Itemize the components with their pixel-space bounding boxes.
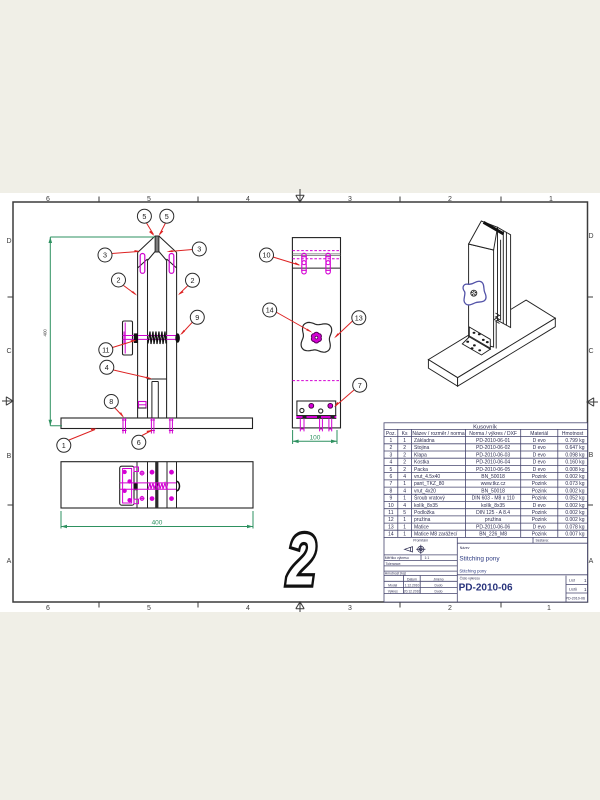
svg-text:11: 11 <box>388 510 393 516</box>
svg-text:D evo: D evo <box>533 438 546 444</box>
svg-text:DIN 125 - A 8.4: DIN 125 - A 8.4 <box>476 510 510 516</box>
svg-text:10: 10 <box>388 503 394 509</box>
svg-text:1: 1 <box>547 605 551 612</box>
svg-text:Název: Název <box>460 546 470 550</box>
svg-text:A: A <box>589 558 594 565</box>
svg-text:Výkres: Výkres <box>388 589 398 593</box>
svg-text:Pozink: Pozink <box>532 532 548 538</box>
svg-text:2: 2 <box>403 445 406 451</box>
svg-text:9: 9 <box>390 496 393 502</box>
svg-text:8: 8 <box>390 488 393 494</box>
svg-text:www.tkz.cz: www.tkz.cz <box>481 481 506 487</box>
svg-text:1: 1 <box>403 524 406 530</box>
svg-text:Dudo: Dudo <box>435 589 443 593</box>
svg-text:4: 4 <box>403 474 406 480</box>
svg-text:2: 2 <box>390 445 393 451</box>
svg-text:List: List <box>569 579 576 583</box>
svg-text:A: A <box>7 558 12 565</box>
svg-text:D evo: D evo <box>533 467 546 473</box>
svg-text:3: 3 <box>103 251 107 260</box>
svg-text:kolík_8x35: kolík_8x35 <box>414 503 438 509</box>
svg-text:B: B <box>7 453 12 460</box>
svg-text:vrut_4.5x40: vrut_4.5x40 <box>414 474 440 480</box>
svg-text:Packa: Packa <box>414 467 428 473</box>
svg-text:Stitching pony: Stitching pony <box>459 556 500 563</box>
svg-text:0.160 kg: 0.160 kg <box>565 460 584 466</box>
svg-text:D evo: D evo <box>533 445 546 451</box>
svg-text:Název / rozměr / norma: Název / rozměr / norma <box>412 431 464 437</box>
svg-text:5: 5 <box>403 510 406 516</box>
svg-text:2: 2 <box>286 520 316 600</box>
svg-text:7: 7 <box>390 481 393 487</box>
svg-text:13: 13 <box>388 524 394 530</box>
svg-text:6: 6 <box>137 438 141 447</box>
svg-text:PD-2010-06-06: PD-2010-06-06 <box>476 524 510 530</box>
svg-text:2: 2 <box>403 467 406 473</box>
svg-text:4: 4 <box>246 605 250 612</box>
svg-text:0.002 kg: 0.002 kg <box>565 510 584 516</box>
svg-text:B: B <box>589 452 594 459</box>
svg-text:Základna: Základna <box>414 438 435 444</box>
svg-text:0.098 kg: 0.098 kg <box>565 452 584 458</box>
svg-text:Norma / výkres / DXF: Norma / výkres / DXF <box>469 431 517 437</box>
svg-text:Pozink: Pozink <box>532 488 548 494</box>
svg-text:0.052 kg: 0.052 kg <box>565 496 584 502</box>
svg-text:Dudo: Dudo <box>435 583 443 587</box>
svg-text:100: 100 <box>310 435 321 442</box>
svg-text:4: 4 <box>403 488 406 494</box>
svg-text:1: 1 <box>403 481 406 487</box>
svg-text:1: 1 <box>549 196 553 203</box>
svg-text:pant_TKZ_80: pant_TKZ_80 <box>414 481 445 487</box>
svg-text:D evo: D evo <box>533 524 546 530</box>
svg-text:Promítání: Promítání <box>413 539 428 543</box>
svg-text:7: 7 <box>358 381 362 390</box>
svg-text:Listů: Listů <box>569 588 577 592</box>
svg-text:PD-2010-06-04: PD-2010-06-04 <box>476 460 510 466</box>
svg-text:14: 14 <box>388 532 394 538</box>
svg-text:Ks: Ks <box>402 431 408 437</box>
svg-text:Datum: Datum <box>407 577 417 581</box>
svg-text:14: 14 <box>266 306 274 315</box>
svg-text:Poz.: Poz. <box>386 431 396 437</box>
svg-text:BN_226_M8: BN_226_M8 <box>479 532 507 538</box>
svg-text:Hmotnost [kg]: Hmotnost [kg] <box>385 572 406 576</box>
svg-text:BN_50018: BN_50018 <box>481 488 505 494</box>
svg-text:Měřítko výkresu: Měřítko výkresu <box>385 556 409 560</box>
svg-text:0.008 kg: 0.008 kg <box>565 467 584 473</box>
svg-text:6: 6 <box>46 605 50 612</box>
svg-text:Tolerance:: Tolerance: <box>386 562 402 566</box>
svg-text:D evo: D evo <box>533 503 546 509</box>
svg-text:8: 8 <box>109 397 113 406</box>
svg-text:Jméno: Jméno <box>433 577 443 581</box>
svg-text:Matice: Matice <box>414 524 429 530</box>
svg-text:10: 10 <box>263 251 271 260</box>
svg-text:D evo: D evo <box>533 452 546 458</box>
svg-text:0.078 kg: 0.078 kg <box>565 524 584 530</box>
svg-text:Materiál: Materiál <box>530 431 548 437</box>
svg-text:2: 2 <box>448 605 452 612</box>
svg-text:Stitching pony: Stitching pony <box>459 569 487 574</box>
svg-text:1: 1 <box>403 496 406 502</box>
svg-text:0.002 kg: 0.002 kg <box>565 503 584 509</box>
svg-text:3: 3 <box>348 196 352 203</box>
svg-text:Šroub vratový: Šroub vratový <box>414 495 445 502</box>
svg-text:400: 400 <box>152 520 163 527</box>
svg-text:Pozink: Pozink <box>532 496 548 502</box>
svg-text:D: D <box>6 238 11 245</box>
svg-text:vrut_4x20: vrut_4x20 <box>414 488 436 494</box>
svg-text:3: 3 <box>348 605 352 612</box>
svg-text:PD-2010-06-03: PD-2010-06-03 <box>476 452 510 458</box>
svg-text:4: 4 <box>403 503 406 509</box>
svg-text:1: 1 <box>62 441 66 450</box>
svg-text:1:1: 1:1 <box>425 556 430 560</box>
svg-text:2: 2 <box>448 196 452 203</box>
svg-text:PD-2010-06-01: PD-2010-06-01 <box>476 438 510 444</box>
svg-text:5: 5 <box>390 467 393 473</box>
svg-text:1: 1 <box>584 578 587 583</box>
svg-text:PD-2010-06: PD-2010-06 <box>566 597 585 601</box>
svg-text:Pozink: Pozink <box>532 510 548 516</box>
svg-text:5: 5 <box>147 605 151 612</box>
svg-text:3: 3 <box>390 452 393 458</box>
svg-text:0.799 kg: 0.799 kg <box>565 438 584 444</box>
svg-text:0.002 kg: 0.002 kg <box>565 517 584 523</box>
svg-text:DIN 603 - M8 x 110: DIN 603 - M8 x 110 <box>472 496 515 502</box>
svg-text:Číslo výkresu: Číslo výkresu <box>460 576 480 581</box>
svg-text:2: 2 <box>403 452 406 458</box>
svg-text:PD-2010-06-05: PD-2010-06-05 <box>476 467 510 473</box>
svg-text:0.647 kg: 0.647 kg <box>565 445 584 451</box>
svg-text:400: 400 <box>42 329 47 337</box>
svg-text:4: 4 <box>246 196 250 203</box>
svg-text:pružina: pružina <box>414 517 431 523</box>
svg-text:C: C <box>6 348 11 355</box>
svg-text:6: 6 <box>390 474 393 480</box>
svg-text:2: 2 <box>191 276 195 285</box>
svg-text:4: 4 <box>390 460 393 466</box>
svg-text:BN_50018: BN_50018 <box>481 474 505 480</box>
svg-text:PD-2010-06: PD-2010-06 <box>459 583 513 594</box>
svg-text:1: 1 <box>403 532 406 538</box>
svg-text:D evo: D evo <box>533 460 546 466</box>
svg-text:5: 5 <box>142 212 146 221</box>
svg-text:Hmotnost: Hmotnost <box>562 431 584 437</box>
svg-text:0.073 kg: 0.073 kg <box>565 481 584 487</box>
svg-text:1: 1 <box>403 438 406 444</box>
svg-text:Sestava:: Sestava: <box>536 539 549 543</box>
svg-text:Stojina: Stojina <box>414 445 430 451</box>
svg-text:2: 2 <box>117 276 121 285</box>
svg-text:Matice M8 zarážecí: Matice M8 zarážecí <box>414 532 458 538</box>
svg-text:11: 11 <box>102 346 109 355</box>
svg-text:20.12.2010: 20.12.2010 <box>404 589 421 593</box>
svg-text:Kusovník: Kusovník <box>473 424 497 430</box>
svg-text:PD-2010-06-02: PD-2010-06-02 <box>476 445 510 451</box>
svg-text:6: 6 <box>46 196 50 203</box>
svg-text:Pozink: Pozink <box>532 481 548 487</box>
svg-text:5: 5 <box>165 212 169 221</box>
svg-text:9: 9 <box>195 313 199 322</box>
svg-text:Model: Model <box>388 583 397 587</box>
svg-text:1: 1 <box>584 587 587 592</box>
svg-text:3: 3 <box>197 245 201 254</box>
svg-text:2: 2 <box>403 460 406 466</box>
svg-text:13: 13 <box>355 314 363 323</box>
svg-text:Pozink: Pozink <box>532 517 548 523</box>
svg-text:5: 5 <box>147 196 151 203</box>
svg-text:kolík_8x35: kolík_8x35 <box>481 503 505 509</box>
svg-text:C: C <box>588 348 593 355</box>
svg-text:pružina: pružina <box>485 517 502 523</box>
svg-text:1.12.2010: 1.12.2010 <box>405 583 420 587</box>
svg-text:1: 1 <box>390 438 393 444</box>
svg-text:4: 4 <box>105 363 109 372</box>
svg-text:Podložka: Podložka <box>414 510 435 516</box>
svg-text:12: 12 <box>388 517 394 523</box>
svg-text:Kostka: Kostka <box>414 460 430 466</box>
svg-text:Pozink: Pozink <box>532 474 548 480</box>
svg-text:D: D <box>588 233 593 240</box>
svg-text:0.002 kg: 0.002 kg <box>565 488 584 494</box>
svg-text:0.002 kg: 0.002 kg <box>565 474 584 480</box>
svg-text:1: 1 <box>403 517 406 523</box>
svg-text:0.007 kg: 0.007 kg <box>565 532 584 538</box>
svg-text:Klapa: Klapa <box>414 452 427 458</box>
